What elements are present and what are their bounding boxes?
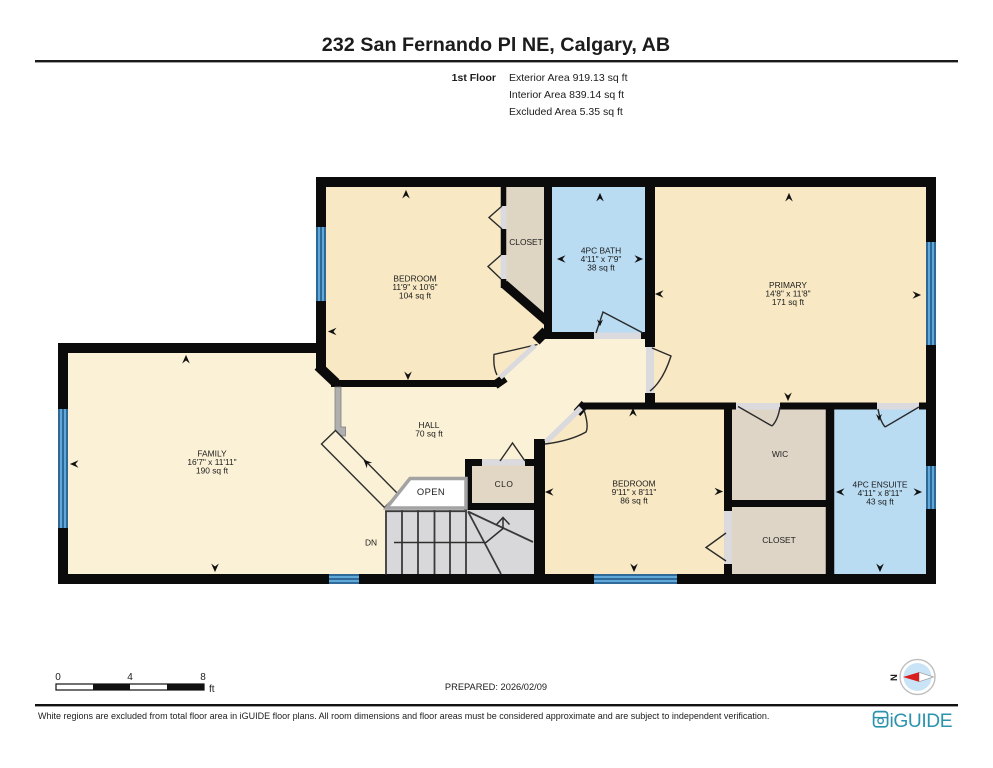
svg-text:WIC: WIC bbox=[772, 449, 788, 459]
svg-text:104 sq ft: 104 sq ft bbox=[399, 291, 432, 301]
svg-text:4: 4 bbox=[127, 672, 133, 683]
svg-text:1st Floor: 1st Floor bbox=[452, 72, 496, 84]
svg-text:Interior Area 839.14 sq ft: Interior Area 839.14 sq ft bbox=[509, 89, 624, 101]
svg-text:White regions are excluded fro: White regions are excluded from total fl… bbox=[38, 711, 769, 721]
svg-text:Excluded Area 5.35 sq ft: Excluded Area 5.35 sq ft bbox=[509, 106, 623, 118]
svg-text:OPEN: OPEN bbox=[417, 486, 445, 497]
svg-text:8: 8 bbox=[200, 672, 206, 683]
svg-text:CLOSET: CLOSET bbox=[509, 237, 543, 247]
svg-text:0: 0 bbox=[55, 672, 61, 683]
svg-text:PREPARED: 2026/02/09: PREPARED: 2026/02/09 bbox=[445, 682, 547, 692]
svg-text:DN: DN bbox=[365, 538, 377, 548]
svg-text:43 sq ft: 43 sq ft bbox=[866, 497, 894, 507]
svg-text:iGUIDE: iGUIDE bbox=[890, 711, 953, 732]
svg-text:38 sq ft: 38 sq ft bbox=[587, 263, 615, 273]
svg-text:CLOSET: CLOSET bbox=[762, 535, 796, 545]
svg-text:ft: ft bbox=[209, 684, 215, 695]
svg-text:70 sq ft: 70 sq ft bbox=[415, 429, 443, 439]
svg-text:232 San Fernando Pl NE, Calgar: 232 San Fernando Pl NE, Calgary, AB bbox=[322, 34, 670, 56]
svg-text:86 sq ft: 86 sq ft bbox=[620, 496, 648, 506]
svg-text:Exterior Area 919.13 sq ft: Exterior Area 919.13 sq ft bbox=[509, 72, 628, 84]
svg-text:N: N bbox=[889, 674, 900, 681]
svg-text:CLO: CLO bbox=[495, 479, 514, 489]
svg-text:190 sq ft: 190 sq ft bbox=[196, 466, 229, 476]
svg-text:171 sq ft: 171 sq ft bbox=[772, 297, 805, 307]
